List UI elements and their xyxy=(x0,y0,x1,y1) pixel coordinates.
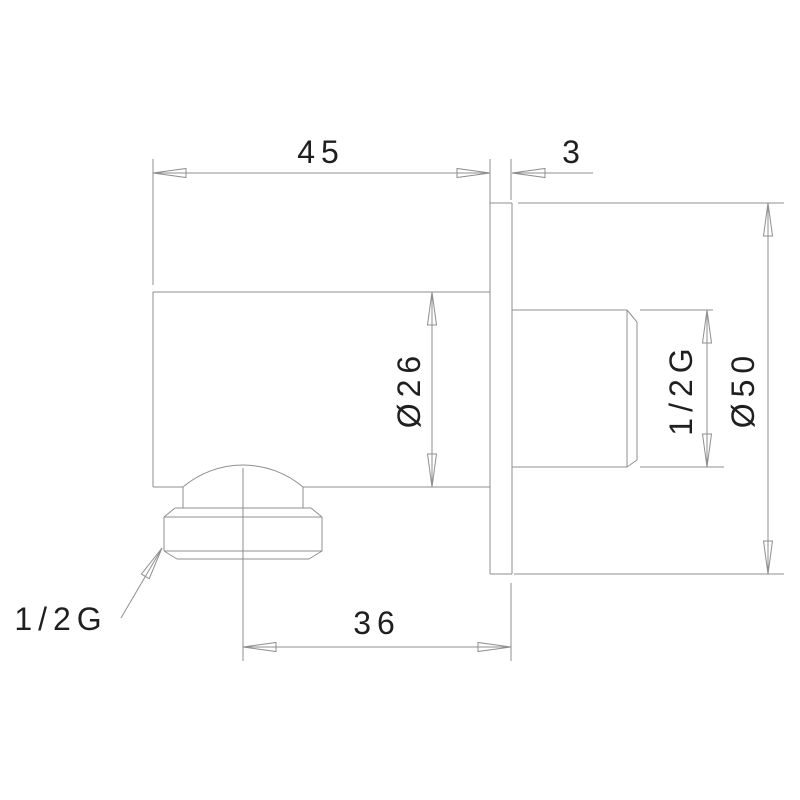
leader-line xyxy=(121,548,162,618)
extension-line xyxy=(153,159,490,285)
outlet-spigot xyxy=(512,310,637,467)
wall-plate xyxy=(490,203,512,574)
leader-half-g-outlet-label: 1/2G xyxy=(14,601,107,637)
dimension-dia50: Ø50 xyxy=(514,203,784,574)
dimension-45: 45 xyxy=(153,134,490,285)
dimension-dia26: Ø26 xyxy=(391,292,437,487)
dimension-half-g-spigot-label: 1/2G xyxy=(663,342,699,435)
elbow-body xyxy=(153,203,637,661)
dimension-36-label: 36 xyxy=(353,605,401,641)
leader-half-g-outlet: 1/2G xyxy=(14,548,162,637)
dimension-3-label: 3 xyxy=(562,134,586,170)
dimension-3: 3 xyxy=(511,134,593,200)
dimension-half-g-spigot: 1/2G xyxy=(640,310,724,467)
drawing-page: 45 3 Ø26 1/2G xyxy=(0,0,800,800)
arrowhead xyxy=(141,548,162,579)
technical-drawing-canvas: 45 3 Ø26 1/2G xyxy=(0,0,800,800)
dimension-dia50-label: Ø50 xyxy=(725,350,761,428)
body-outline xyxy=(153,292,490,487)
dimension-36: 36 xyxy=(243,583,511,661)
dimension-dia26-label: Ø26 xyxy=(391,350,427,428)
dimension-45-label: 45 xyxy=(297,134,345,170)
